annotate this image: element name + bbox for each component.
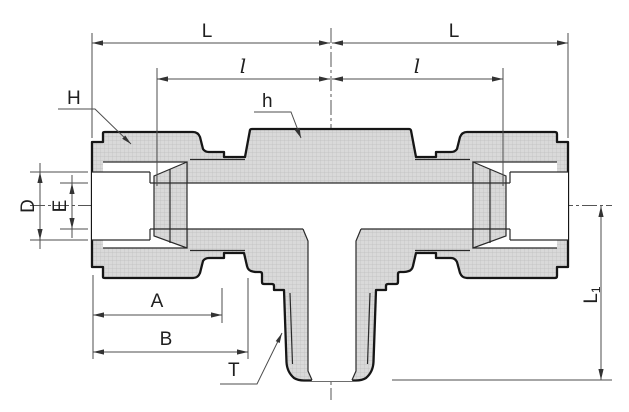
label-A: A (151, 291, 164, 312)
label-h: h (262, 91, 273, 112)
branch-bore (303, 229, 361, 381)
leader-T: T (220, 333, 282, 384)
label-l-left: l (240, 54, 246, 78)
tee-fitting-diagram: L L l l D E A (0, 0, 629, 412)
label-H: H (67, 88, 81, 109)
label-L1-main: L (581, 293, 602, 304)
through-bore (150, 183, 510, 229)
label-L1: L1 (581, 286, 603, 304)
label-E: E (50, 200, 71, 213)
dimension-E: E (50, 175, 88, 238)
label-T: T (228, 360, 240, 381)
dimension-A: A (93, 275, 222, 359)
label-l-right: l (414, 54, 420, 78)
label-D: D (18, 199, 39, 213)
technical-drawing-canvas: L L l l D E A (0, 0, 629, 412)
label-L1-sub: 1 (589, 286, 603, 293)
label-B: B (160, 329, 173, 350)
dimension-B: B (93, 278, 248, 359)
label-L-left: L (202, 21, 213, 42)
label-L-right: L (449, 21, 460, 42)
